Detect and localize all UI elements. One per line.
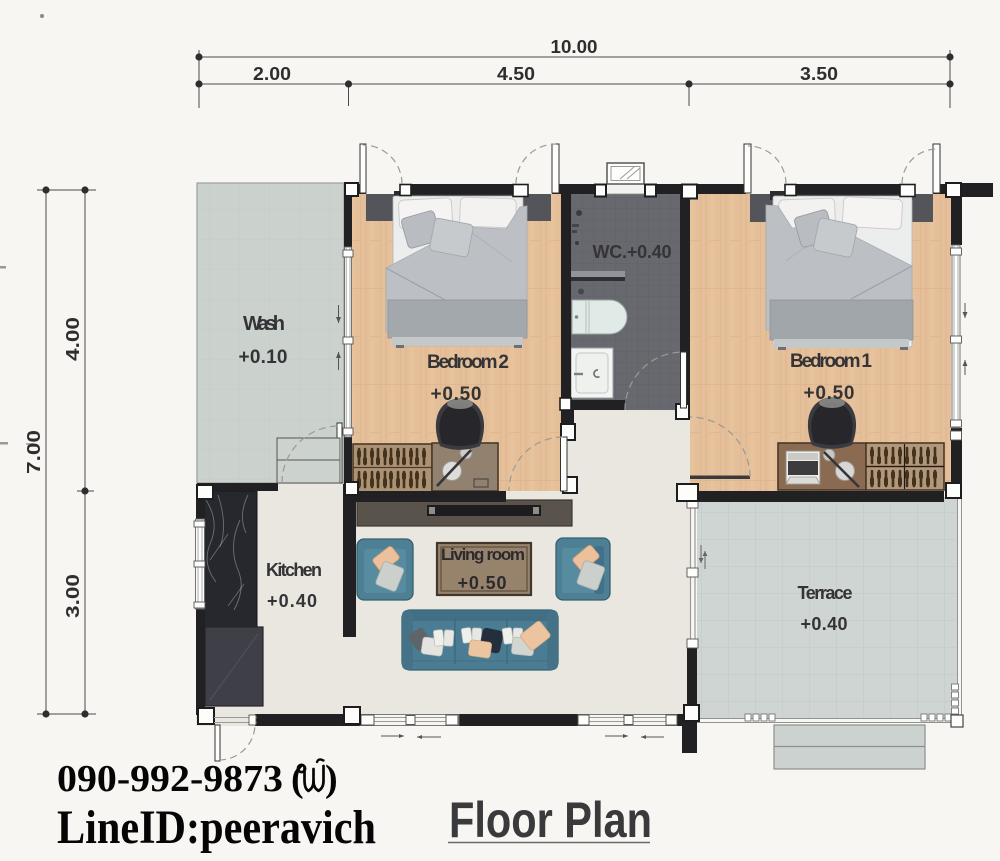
svg-text:+0.50: +0.50 bbox=[458, 573, 507, 593]
svg-text:Bedroom 1: Bedroom 1 bbox=[790, 351, 872, 372]
svg-text:Kitchen: Kitchen bbox=[266, 560, 322, 580]
svg-text:2.00: 2.00 bbox=[253, 64, 291, 84]
svg-text:+0.50: +0.50 bbox=[431, 384, 482, 405]
svg-text:4.50: 4.50 bbox=[497, 64, 535, 84]
svg-text:WC.+0.40: WC.+0.40 bbox=[593, 242, 672, 262]
svg-text:+0.40: +0.40 bbox=[801, 614, 848, 634]
svg-text:Floor Plan: Floor Plan bbox=[449, 792, 652, 848]
svg-text:Wash: Wash bbox=[243, 313, 285, 335]
svg-text:+0.40: +0.40 bbox=[267, 591, 317, 611]
svg-text:Terrace: Terrace bbox=[798, 583, 853, 603]
svg-text:090-992-9873: 090-992-9873 bbox=[57, 758, 283, 800]
svg-text:LineID:peeravich: LineID:peeravich bbox=[57, 801, 376, 854]
svg-text:Bedroom 2: Bedroom 2 bbox=[427, 352, 509, 373]
svg-text:4.00: 4.00 bbox=[63, 317, 83, 361]
svg-text:Living room: Living room bbox=[441, 545, 525, 564]
svg-text:7.00: 7.00 bbox=[24, 430, 44, 474]
svg-text:3.50: 3.50 bbox=[800, 64, 838, 84]
svg-text:10.00: 10.00 bbox=[551, 37, 598, 57]
svg-text:3.00: 3.00 bbox=[63, 574, 83, 618]
svg-text:+0.10: +0.10 bbox=[239, 347, 288, 368]
svg-text:+0.50: +0.50 bbox=[804, 383, 855, 404]
svg-text:): ) bbox=[325, 758, 338, 800]
